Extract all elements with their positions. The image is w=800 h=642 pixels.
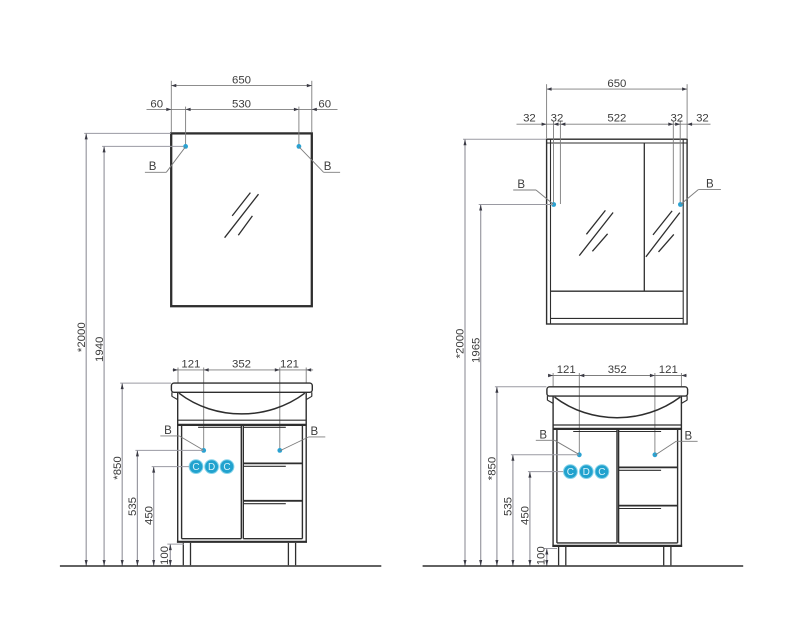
svg-text:535: 535	[503, 497, 515, 516]
svg-text:100: 100	[159, 546, 171, 565]
svg-text:C: C	[598, 467, 605, 478]
svg-text:B: B	[684, 430, 692, 442]
svg-text:1965: 1965	[470, 338, 482, 363]
svg-text:C: C	[567, 467, 574, 478]
svg-text:530: 530	[232, 99, 251, 111]
svg-text:650: 650	[607, 78, 626, 90]
svg-text:352: 352	[608, 364, 627, 376]
svg-text:B: B	[539, 429, 547, 441]
svg-text:D: D	[208, 462, 215, 473]
svg-text:1940: 1940	[94, 337, 106, 362]
svg-text:32: 32	[551, 113, 564, 125]
svg-text:*2000: *2000	[455, 329, 467, 359]
svg-text:60: 60	[150, 98, 163, 110]
svg-text:B: B	[517, 179, 525, 191]
svg-text:100: 100	[536, 546, 548, 565]
svg-text:121: 121	[280, 359, 299, 371]
svg-text:32: 32	[696, 113, 709, 125]
svg-text:450: 450	[520, 506, 532, 525]
svg-text:121: 121	[181, 359, 200, 371]
svg-text:C: C	[192, 462, 199, 473]
svg-text:B: B	[324, 161, 332, 173]
svg-text:650: 650	[232, 74, 251, 86]
svg-text:*850: *850	[487, 457, 499, 480]
svg-text:B: B	[310, 426, 318, 438]
svg-text:121: 121	[557, 364, 576, 376]
svg-text:32: 32	[670, 113, 683, 125]
svg-text:D: D	[583, 467, 590, 478]
svg-text:450: 450	[143, 506, 155, 525]
svg-text:C: C	[223, 462, 230, 473]
svg-text:121: 121	[659, 364, 678, 376]
svg-text:352: 352	[232, 359, 251, 371]
svg-text:*2000: *2000	[76, 322, 88, 352]
svg-text:B: B	[164, 425, 172, 437]
svg-text:32: 32	[523, 113, 536, 125]
svg-text:522: 522	[607, 113, 626, 125]
svg-text:*850: *850	[112, 456, 124, 479]
svg-text:B: B	[706, 179, 714, 191]
svg-text:B: B	[149, 161, 157, 173]
svg-text:535: 535	[127, 497, 139, 516]
svg-text:60: 60	[318, 98, 331, 110]
